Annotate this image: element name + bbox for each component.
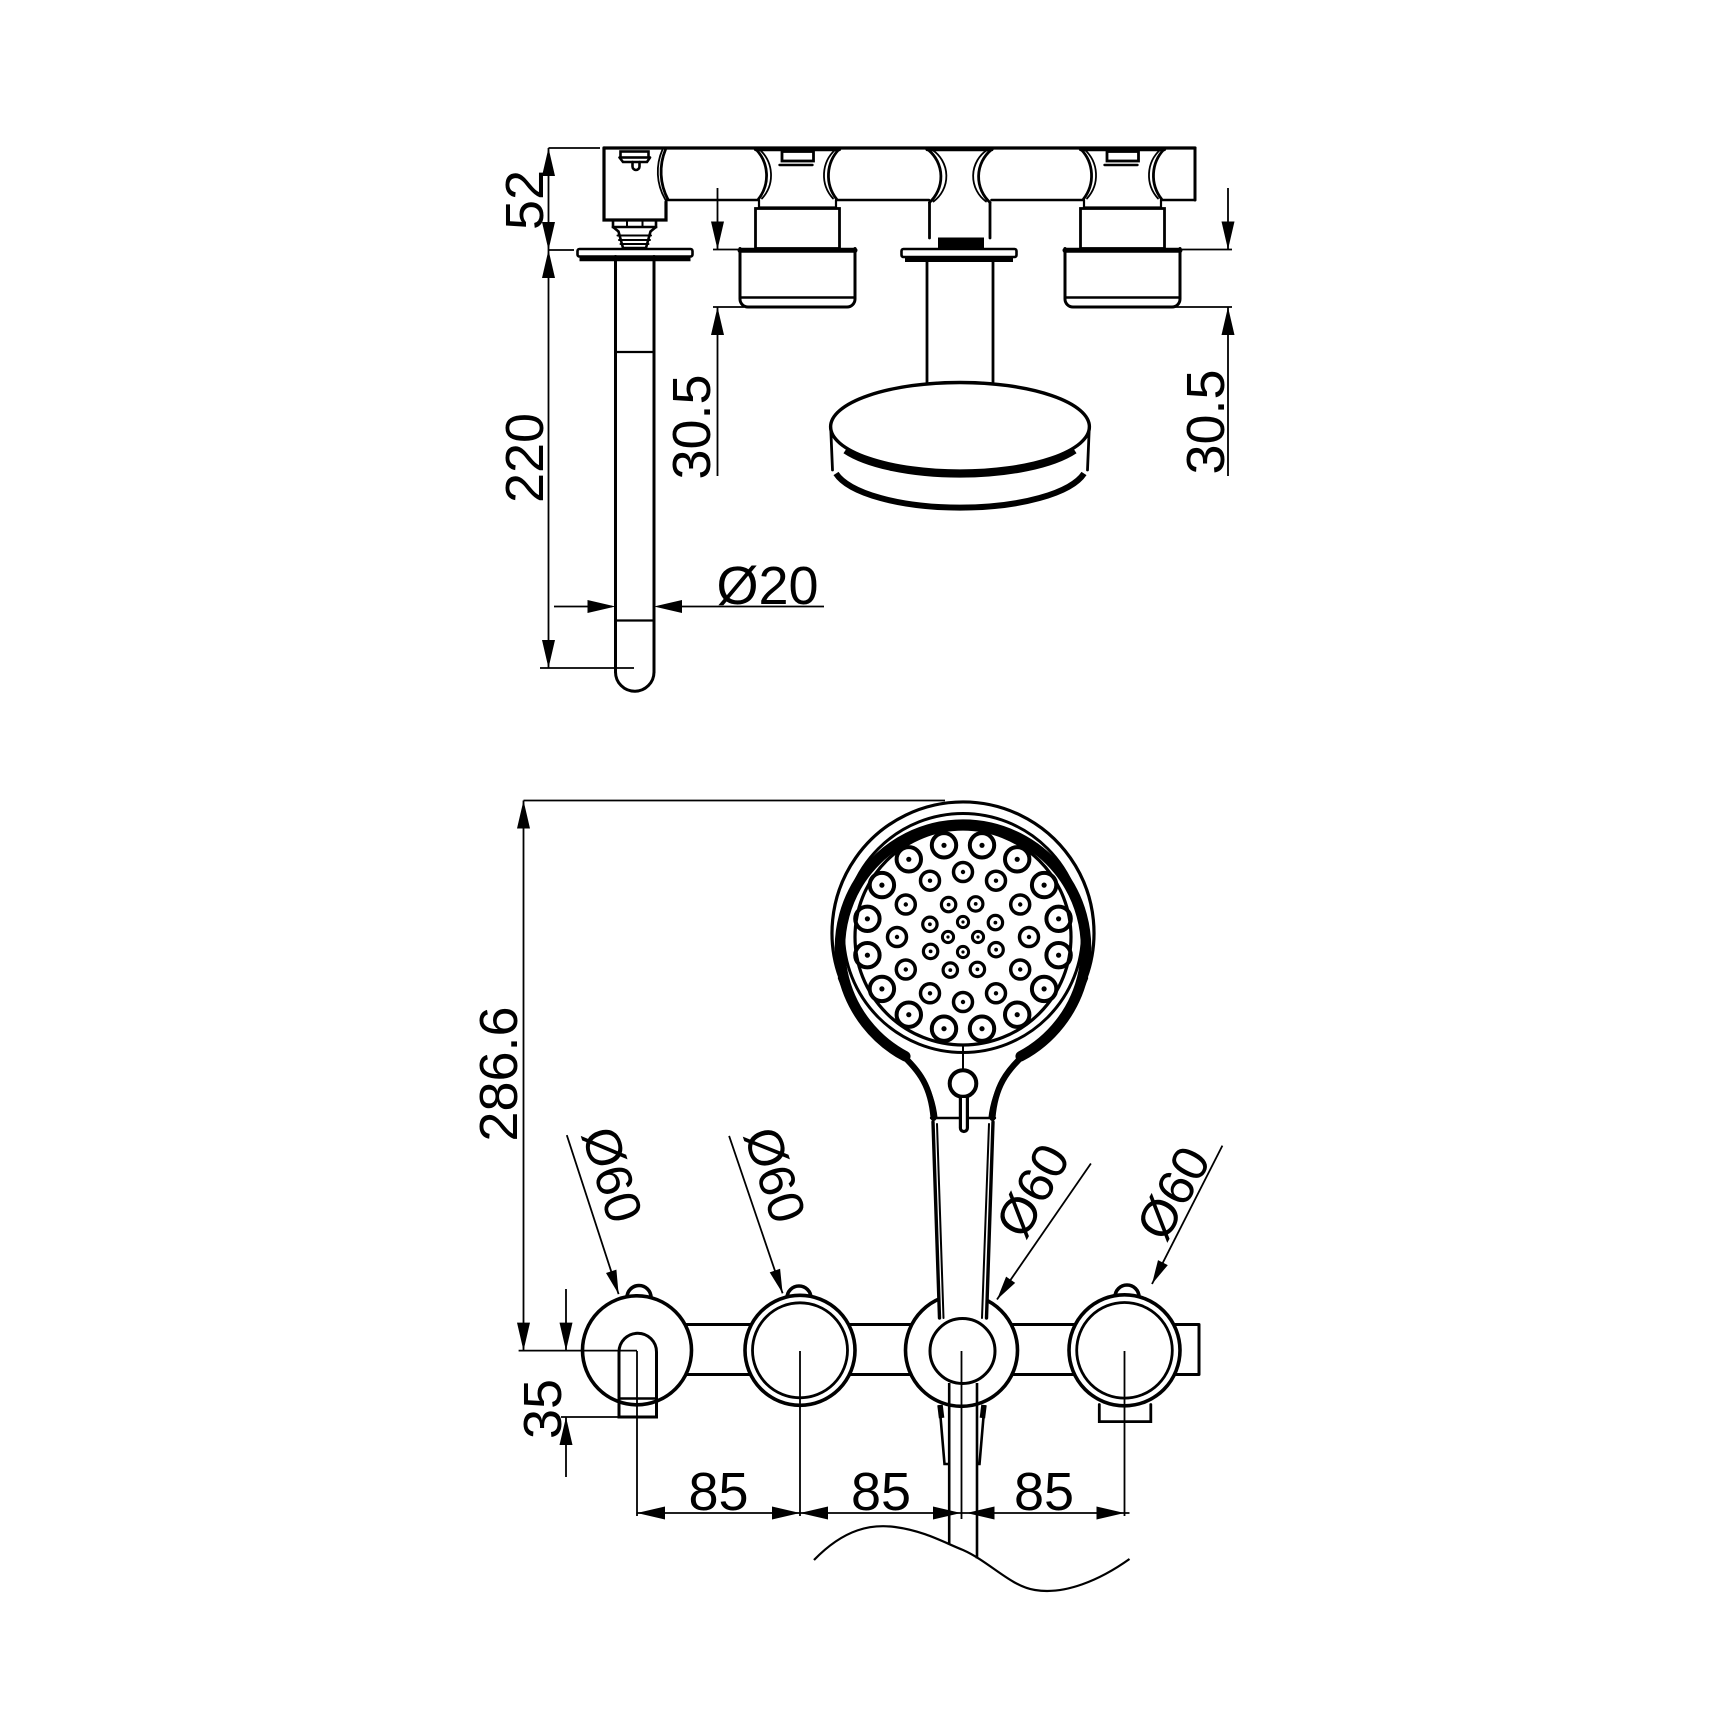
svg-text:85: 85 xyxy=(1014,1462,1074,1522)
svg-text:85: 85 xyxy=(851,1462,911,1522)
svg-text:30.5: 30.5 xyxy=(662,374,722,479)
svg-text:30.5: 30.5 xyxy=(1176,369,1236,474)
svg-text:Ø20: Ø20 xyxy=(716,556,818,616)
svg-text:85: 85 xyxy=(688,1462,748,1522)
svg-text:220: 220 xyxy=(495,413,555,503)
svg-text:286.6: 286.6 xyxy=(469,1006,529,1141)
svg-text:52: 52 xyxy=(495,170,555,230)
svg-text:35: 35 xyxy=(513,1379,573,1439)
